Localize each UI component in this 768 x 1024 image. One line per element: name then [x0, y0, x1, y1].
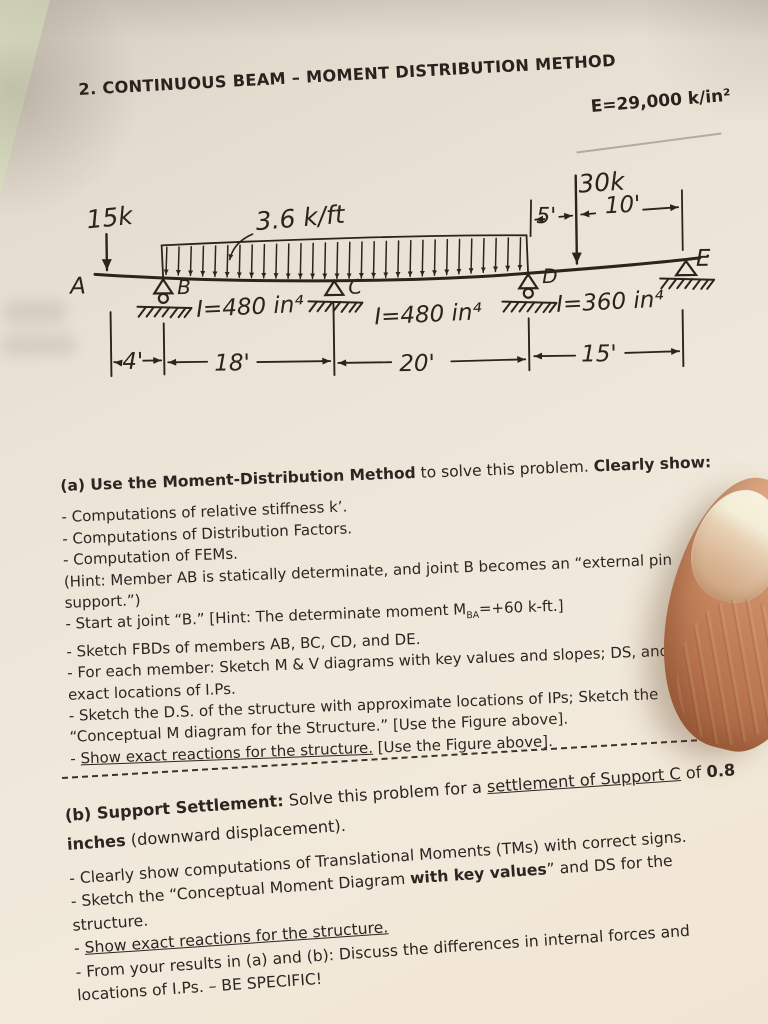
dim-10ft-label: 10' [604, 191, 641, 219]
udl-label-leader [229, 234, 252, 259]
part-a-heading-bold: (a) Use the Moment-Distribution Method [60, 464, 416, 495]
node-a-label: A [68, 273, 86, 299]
pencil-underline [576, 132, 721, 153]
beam-diagram: 15k A 3.6 k/ft 30k 5' 10' B C D E I=480 … [48, 153, 761, 388]
inertia-cd-label: I=480 in⁴ [374, 299, 483, 330]
node-b-label: B [177, 275, 191, 299]
photographed-worksheet: 2. CONTINUOUS BEAM – MOMENT DISTRIBUTION… [0, 0, 768, 1024]
paper-top-shadow [0, 0, 768, 40]
part-a-section: (a) Use the Moment-Distribution Method t… [60, 451, 760, 770]
dim-ab-label: 4' [122, 349, 143, 375]
moment-subscript: BA [466, 610, 479, 621]
udl-value-label: 3.6 k/ft [254, 200, 347, 236]
point-load-left-label: 15k [85, 201, 135, 235]
part-b-section: (b) Support Settlement: Solve this probl… [64, 753, 768, 1008]
problem-title: 2. CONTINUOUS BEAM – MOMENT DISTRIBUTION… [78, 51, 616, 99]
udl-left-edge [162, 245, 163, 276]
dim-cd-label: 20' [399, 351, 435, 377]
node-c-label: C [348, 275, 362, 299]
inertia-de-label: I=360 in⁴ [556, 287, 665, 318]
node-e-label: E [696, 246, 711, 272]
udl-arrows [166, 238, 521, 281]
inertia-bc-label: I=480 in⁴ [196, 292, 305, 323]
dim-de-label: 15' [581, 341, 617, 367]
udl-right-edge [527, 235, 529, 272]
dim-5ft-label: 5' [536, 204, 556, 229]
dim-bc-label: 18' [214, 350, 250, 376]
part-a-heading-bold2: Clearly show: [593, 453, 711, 475]
point-load-right-arrow [576, 176, 577, 264]
elastic-modulus-value: E=29,000 k/in² [590, 86, 731, 117]
node-d-label: D [542, 264, 558, 288]
point-load-left-arrow [106, 234, 107, 270]
